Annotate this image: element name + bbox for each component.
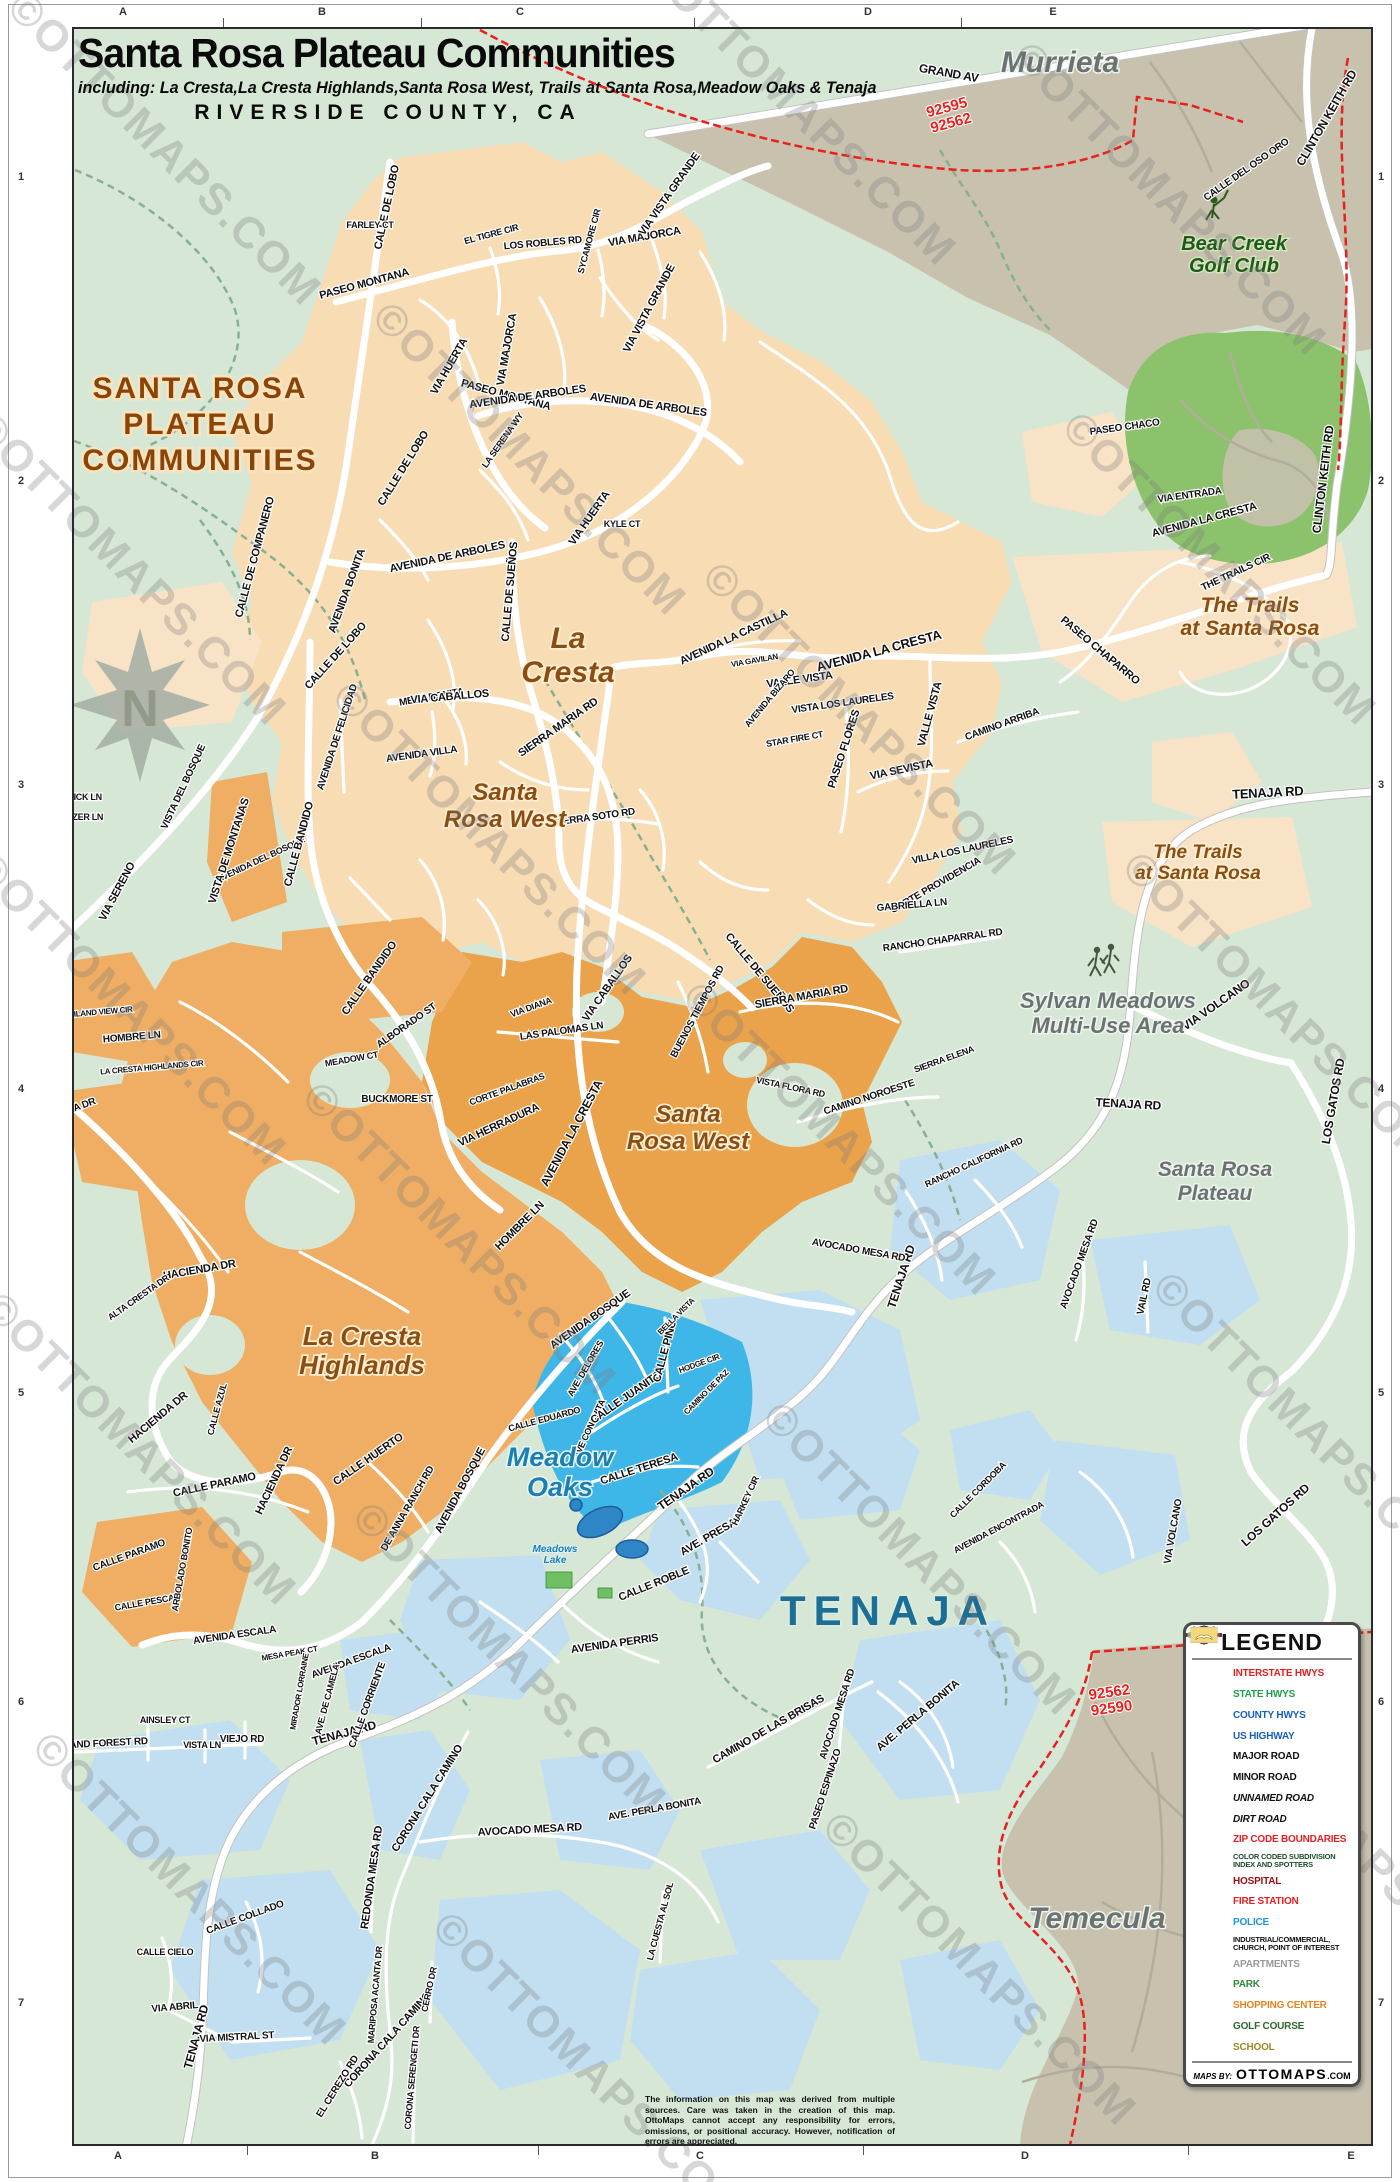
region-label: Santa Rosa xyxy=(1158,1158,1273,1181)
region-label: Lake xyxy=(544,1555,567,1566)
park-icon xyxy=(1192,1975,1228,1995)
region-label: Cresta xyxy=(521,656,614,689)
unnamed-road-swatch xyxy=(1192,1789,1228,1809)
street-label: WITZER LN xyxy=(57,812,103,822)
legend-item-hospital: HOSPITAL xyxy=(1192,1873,1352,1891)
grid-tick xyxy=(694,18,695,27)
legend-item-subdivision-spotter: COLOR CODED SUBDIVISION INDEX AND SPOTTE… xyxy=(1192,1852,1352,1870)
legend-item-industrial: INDUSTRIAL/COMMERCIAL, CHURCH, POINT OF … xyxy=(1192,1935,1352,1953)
region-label: Sylvan Meadows xyxy=(1020,988,1196,1013)
county-shield-icon xyxy=(1192,1706,1228,1726)
grid-letter-bottom: B xyxy=(371,2150,379,2162)
grid-tick xyxy=(1188,2146,1189,2155)
state-shield-icon: 56 xyxy=(1192,1685,1228,1705)
legend-item-major-road: MAJOR ROAD xyxy=(1192,1748,1352,1766)
title-block: Santa Rosa Plateau Communities including… xyxy=(78,30,718,125)
grid-number-left: 5 xyxy=(18,1387,24,1399)
legend: LEGEND 5 INTERSTATE HWYS 56 STATE HWYS C… xyxy=(1183,1622,1361,2087)
region-label: Temecula xyxy=(1028,1902,1165,1935)
legend-item-dirt-road: DIRT ROAD xyxy=(1192,1811,1352,1829)
street-label: FARLEY CT xyxy=(346,220,394,230)
grid-number-left: 1 xyxy=(18,171,24,183)
legend-item-golf-course: GOLF COURSE xyxy=(1192,2018,1352,2036)
region-label: Multi-Use Area xyxy=(1031,1013,1184,1038)
legend-item-police: POLICE xyxy=(1192,1914,1352,1932)
grid-number-right: 6 xyxy=(1378,1696,1384,1708)
school-book-icon xyxy=(1192,2038,1228,2058)
interstate-shield-icon: 5 xyxy=(1192,1664,1228,1684)
grid-number-left: 6 xyxy=(18,1696,24,1708)
fire-station-icon xyxy=(1192,1892,1228,1912)
grid-letter-top: D xyxy=(864,6,872,18)
street-label: VIEJO RD xyxy=(220,1734,264,1745)
grid-number-left: 3 xyxy=(18,779,24,791)
minor-road-swatch xyxy=(1192,1768,1228,1788)
grid-tick xyxy=(538,2146,539,2155)
disclaimer-text: The information on this map was derived … xyxy=(645,2094,895,2147)
map-title: Santa Rosa Plateau Communities xyxy=(78,30,692,77)
police-icon xyxy=(1192,1913,1228,1933)
map-county: RIVERSIDE COUNTY, CA xyxy=(78,101,698,125)
legend-item-zip-boundaries: ZIP CODE BOUNDARIES xyxy=(1192,1831,1352,1849)
hospital-icon xyxy=(1192,1872,1228,1892)
legend-item-shopping-center: SHOPPING CENTER xyxy=(1192,1997,1352,2015)
grid-letter-top: C xyxy=(516,6,524,18)
industrial-swatch xyxy=(1192,1934,1228,1954)
grid-letter-top: B xyxy=(318,6,326,18)
street-label: KLICK LN xyxy=(62,792,102,802)
region-label: COMMUNITIES xyxy=(82,444,317,477)
region-label: PLATEAU xyxy=(123,408,276,441)
legend-item-county: COUNTY HWYS xyxy=(1192,1707,1352,1725)
grid-letter-bottom: C xyxy=(696,2150,704,2162)
legend-item-unnamed-road: UNNAMED ROAD xyxy=(1192,1790,1352,1808)
legend-item-us-highway: 131 US HIGHWAY xyxy=(1192,1728,1352,1746)
region-label: Santa xyxy=(655,1101,720,1128)
dirt-road-swatch xyxy=(1192,1810,1228,1830)
zip-boundary-swatch xyxy=(1192,1830,1228,1850)
grid-tick xyxy=(421,18,422,27)
region-label: Plateau xyxy=(1178,1182,1253,1205)
region-label: La xyxy=(550,622,585,655)
grid-number-right: 5 xyxy=(1378,1387,1384,1399)
street-label: CALLE CIELO xyxy=(137,1947,194,1957)
street-label: BUCKMORE ST xyxy=(361,1094,432,1105)
region-label: La Cresta xyxy=(303,1321,422,1351)
region-label: Highlands xyxy=(299,1350,425,1380)
region-label: Meadow xyxy=(507,1442,616,1472)
grid-letter-bottom: D xyxy=(1021,2150,1029,2162)
grid-number-right: 4 xyxy=(1378,1083,1384,1095)
grid-number-right: 7 xyxy=(1378,1997,1384,2009)
grid-number-left: 2 xyxy=(18,475,24,487)
street-label: AINSLEY CT xyxy=(140,1715,191,1725)
map-page: N CALLE DE LOBOFARLEY CTPASEO MONTANACAL… xyxy=(0,0,1400,2182)
grid-number-left: 4 xyxy=(18,1083,24,1095)
major-road-swatch xyxy=(1192,1747,1228,1767)
grid-letter-bottom: A xyxy=(114,2150,122,2162)
grid-tick xyxy=(247,2146,248,2155)
grid-tick xyxy=(223,18,224,27)
region-label: Meadows xyxy=(532,1544,577,1555)
legend-credit: MAPS BY: OTTOMAPS .COM xyxy=(1192,2061,1352,2082)
region-label: Rosa West xyxy=(627,1128,750,1155)
grid-letter-bottom: E xyxy=(1347,2150,1354,2162)
grid-letter-top: A xyxy=(119,6,127,18)
region-label: SANTA ROSA xyxy=(93,372,308,405)
park-patch xyxy=(546,1572,572,1588)
svg-text:N: N xyxy=(121,680,159,738)
legend-item-minor-road: MINOR ROAD xyxy=(1192,1769,1352,1787)
subdivision-spotter-icon xyxy=(1192,1851,1228,1871)
grid-number-left: 7 xyxy=(18,1997,24,2009)
grid-tick xyxy=(961,18,962,27)
park-patch-small xyxy=(598,1588,612,1598)
region-label: The Trails xyxy=(1153,842,1242,863)
grid-tick xyxy=(863,2146,864,2155)
grid-letter-top: E xyxy=(1049,6,1056,18)
legend-item-interstate: 5 INTERSTATE HWYS xyxy=(1192,1666,1352,1684)
legend-item-park: PARK xyxy=(1192,1977,1352,1995)
us-highway-shield-icon: 131 xyxy=(1192,1727,1228,1747)
apartments-icon xyxy=(1192,1955,1228,1975)
region-label: Oaks xyxy=(527,1472,593,1502)
street-label: VISTA LN xyxy=(183,1740,221,1750)
grid-number-right: 1 xyxy=(1378,171,1384,183)
grid-number-right: 2 xyxy=(1378,475,1384,487)
legend-item-school: SCHOOL xyxy=(1192,2039,1352,2057)
map-subtitle: including: La Cresta,La Cresta Highlands… xyxy=(78,79,705,98)
legend-item-apartments: APARTMENTS xyxy=(1192,1956,1352,1974)
shopping-cart-icon xyxy=(1192,1996,1228,2016)
legend-item-fire-station: FIRE STATION xyxy=(1192,1894,1352,1912)
legend-item-state: 56 STATE HWYS xyxy=(1192,1686,1352,1704)
golf-course-icon xyxy=(1192,2017,1228,2037)
grid-number-right: 3 xyxy=(1378,779,1384,791)
